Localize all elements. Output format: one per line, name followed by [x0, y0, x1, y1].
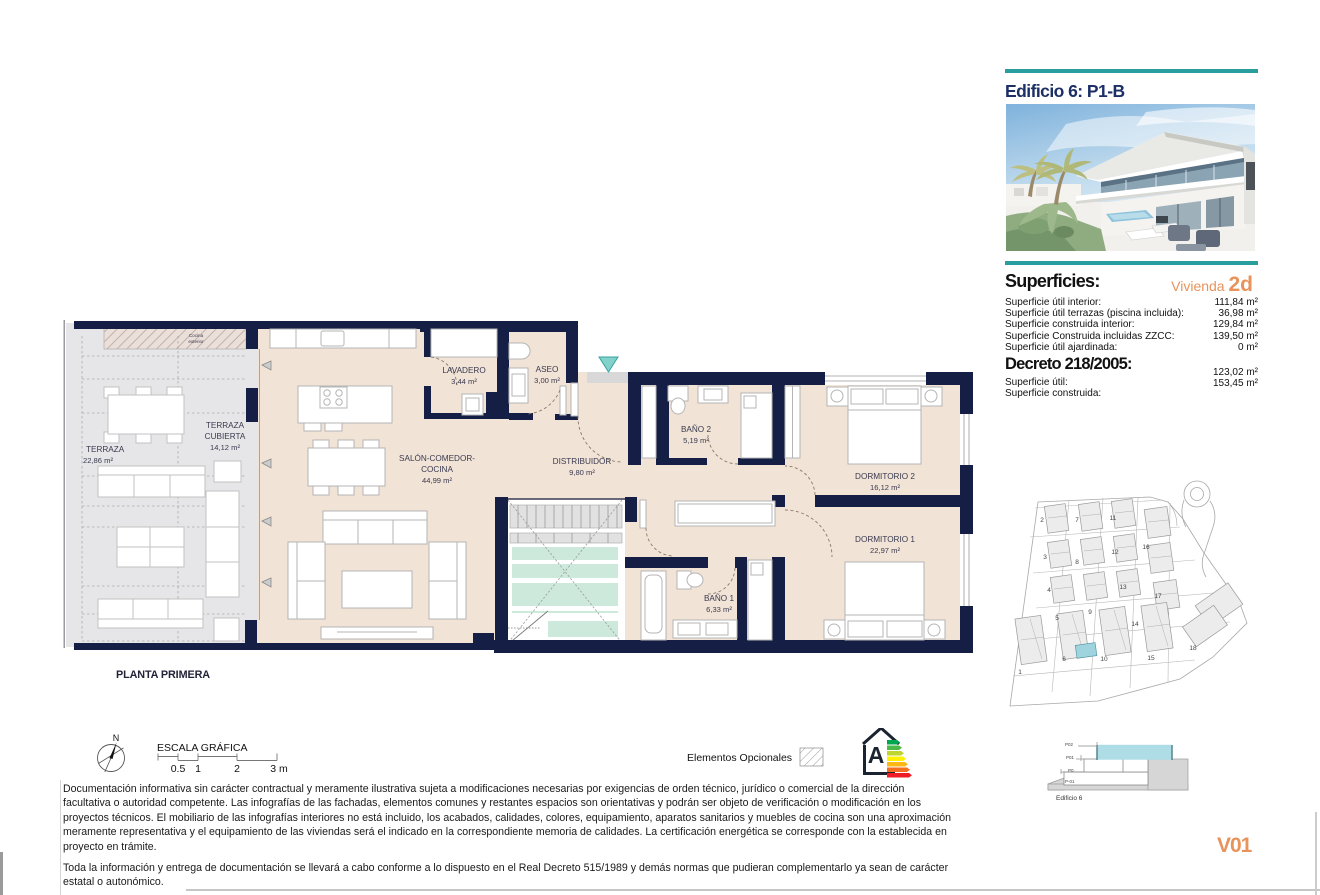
svg-text:P0: P0 — [1068, 768, 1074, 773]
svg-text:16,12 m²: 16,12 m² — [870, 483, 900, 492]
svg-text:DORMITORIO 2: DORMITORIO 2 — [855, 472, 915, 481]
svg-text:5: 5 — [1055, 615, 1059, 622]
svg-text:18: 18 — [1189, 645, 1197, 652]
svg-text:COCINA: COCINA — [421, 465, 453, 474]
svg-text:14: 14 — [1131, 621, 1139, 628]
svg-text:SALÓN-COMEDOR-: SALÓN-COMEDOR- — [399, 453, 475, 463]
svg-text:CUBIERTA: CUBIERTA — [205, 432, 246, 441]
svg-text:6,33 m²: 6,33 m² — [706, 605, 732, 614]
svg-text:9: 9 — [1088, 609, 1092, 616]
svg-text:2: 2 — [234, 763, 240, 775]
svg-text:DISTRIBUIDOR: DISTRIBUIDOR — [553, 457, 612, 466]
svg-text:7: 7 — [1075, 517, 1079, 524]
svg-text:3 m: 3 m — [270, 763, 288, 775]
svg-text:Elementos Opcionales: Elementos Opcionales — [687, 752, 792, 764]
svg-text:0.5: 0.5 — [171, 763, 186, 775]
svg-text:Cocina: Cocina — [189, 333, 204, 338]
svg-text:TERRAZA: TERRAZA — [206, 421, 245, 430]
svg-text:P02: P02 — [1065, 742, 1074, 747]
svg-text:3,00 m²: 3,00 m² — [534, 376, 560, 385]
svg-text:ESCALA GRÁFICA: ESCALA GRÁFICA — [157, 741, 247, 754]
svg-text:exterior: exterior — [188, 339, 204, 344]
svg-text:16: 16 — [1142, 544, 1150, 551]
svg-text:5,19 m²: 5,19 m² — [683, 436, 709, 445]
svg-text:BAÑO 1: BAÑO 1 — [704, 593, 734, 603]
svg-text:2: 2 — [1040, 517, 1044, 524]
svg-text:13: 13 — [1119, 584, 1127, 591]
svg-text:TERRAZA: TERRAZA — [86, 445, 125, 454]
svg-text:1: 1 — [195, 763, 201, 775]
svg-text:LAVADERO: LAVADERO — [442, 366, 485, 375]
svg-text:8: 8 — [1075, 559, 1079, 566]
svg-text:N: N — [113, 733, 120, 743]
svg-text:BAÑO 2: BAÑO 2 — [681, 424, 711, 434]
svg-text:P01: P01 — [1066, 755, 1075, 760]
svg-text:DORMITORIO 1: DORMITORIO 1 — [855, 535, 915, 544]
svg-text:12: 12 — [1111, 549, 1119, 556]
svg-text:14,12 m²: 14,12 m² — [210, 443, 240, 452]
svg-text:44,99 m²: 44,99 m² — [422, 476, 452, 485]
svg-text:P-01: P-01 — [1065, 779, 1075, 784]
svg-text:A: A — [868, 742, 885, 768]
svg-text:10: 10 — [1100, 656, 1108, 663]
svg-text:1: 1 — [1018, 669, 1022, 676]
svg-text:4: 4 — [1047, 587, 1051, 594]
svg-text:17: 17 — [1154, 593, 1162, 600]
svg-text:22,86 m²: 22,86 m² — [83, 456, 113, 465]
svg-text:6: 6 — [1062, 656, 1066, 663]
svg-text:9,80 m²: 9,80 m² — [569, 468, 595, 477]
svg-text:ASEO: ASEO — [536, 365, 559, 374]
svg-text:15: 15 — [1147, 655, 1155, 662]
svg-text:22,97 m²: 22,97 m² — [870, 546, 900, 555]
svg-text:3,44 m²: 3,44 m² — [451, 377, 477, 386]
svg-text:3: 3 — [1043, 554, 1047, 561]
svg-text:11: 11 — [1110, 515, 1117, 522]
